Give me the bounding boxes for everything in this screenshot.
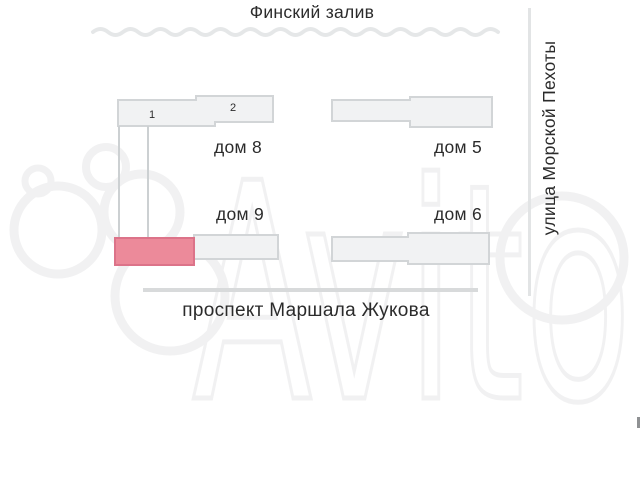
right-street-label: улица Морской Пехоты (539, 41, 559, 236)
building-dom8-label: дом 8 (214, 137, 262, 157)
map-canvas: Avito Финский залив улица Морской Пехоты… (0, 0, 640, 480)
shoreline-wave (93, 29, 498, 35)
building-dom8-shape (118, 96, 273, 126)
building-dom5-label: дом 5 (434, 137, 482, 157)
bottom-street-label: проспект Маршала Жукова (182, 300, 430, 321)
gulf-label: Финский залив (250, 2, 375, 22)
highlighted-building-section (115, 238, 194, 265)
building-dom9-shape (194, 235, 278, 259)
unit-1-label: 1 (149, 109, 155, 121)
unit-2-label: 2 (230, 102, 236, 114)
watermark-logo-circle (14, 186, 102, 274)
map-plan: Avito Финский залив улица Морской Пехоты… (0, 0, 640, 480)
building-dom6-shape (332, 233, 489, 264)
watermark-wordmark: Avito (192, 120, 632, 469)
building-dom9-label: дом 9 (216, 204, 264, 224)
building-dom6-label: дом 6 (434, 204, 482, 224)
